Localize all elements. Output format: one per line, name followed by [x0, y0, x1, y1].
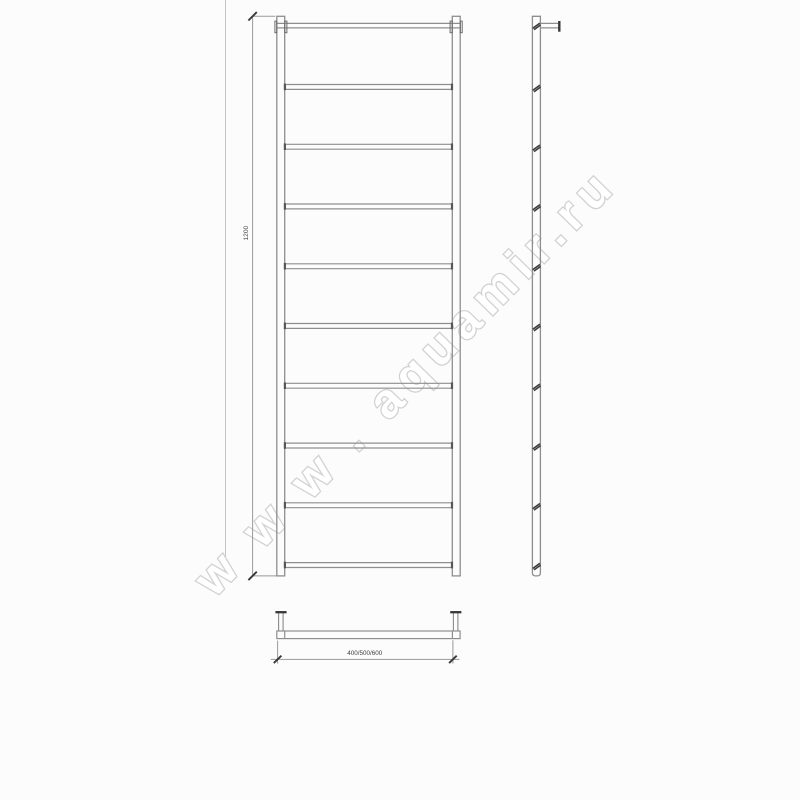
svg-text:400/500/600: 400/500/600 — [347, 650, 383, 657]
svg-text:1200: 1200 — [243, 225, 250, 240]
svg-text:www.aquamir.ru: www.aquamir.ru — [184, 157, 628, 607]
